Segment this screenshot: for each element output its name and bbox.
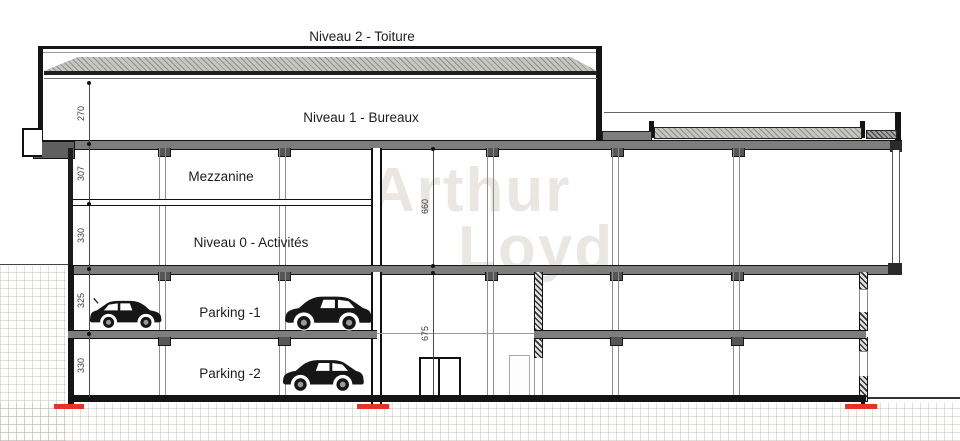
foundation-marker: [357, 404, 389, 409]
dimension-label-307: 307: [75, 150, 87, 196]
column: [612, 272, 619, 330]
roof-inner-line: [43, 52, 596, 53]
dimension-dot: [431, 395, 435, 399]
basement-window: [859, 351, 868, 378]
dimension-line-left: [89, 82, 90, 398]
wing-roof-insulation-band: [654, 127, 862, 139]
dimension-label-330: 330: [75, 212, 87, 258]
slab-end-block-right: [888, 263, 902, 275]
mezzanine-floor: [73, 199, 371, 206]
wing-roof-right-strip: [866, 130, 897, 139]
dimension-line-660: [433, 148, 434, 265]
parking1-floor-edge-line: [377, 333, 534, 334]
door-opening-jambs: [534, 358, 543, 397]
basement-window: [859, 289, 868, 314]
right-facade-niveau0: [892, 150, 900, 266]
car-icon: [282, 290, 374, 334]
roof-insulation-band: [44, 57, 597, 71]
label-niveau0-activites: Niveau 0 - Activités: [166, 235, 336, 250]
watermark-line1: Arthur: [370, 160, 571, 222]
beam-notch: [158, 337, 171, 346]
ground-line-left: [0, 264, 68, 265]
basement-bottom-slab: [68, 395, 866, 402]
dimension-label-325: 325: [75, 277, 87, 323]
terrain-hatch-bottom: [0, 403, 960, 441]
facade-ledge: [22, 128, 42, 157]
ground-line-right: [864, 397, 960, 399]
dimension-label-270: 270: [75, 90, 87, 136]
interior-wall-niveau0: [371, 148, 382, 266]
column: [487, 148, 494, 266]
beam-notch: [731, 337, 744, 346]
wing-roof-top-line: [604, 112, 899, 113]
building-section-drawing: Arthur Loyd: [0, 0, 960, 441]
dimension-dot: [87, 81, 91, 85]
column: [612, 148, 619, 266]
label-niveau2-toiture: Niveau 2 - Toiture: [272, 29, 452, 44]
dimension-dot: [431, 264, 435, 268]
dimension-dot: [87, 142, 91, 146]
office-parapet-top: [38, 46, 602, 49]
column: [733, 148, 740, 266]
roof-deck-line: [44, 71, 597, 75]
roof-underside-line: [44, 78, 597, 79]
niveau0-left-wall: [68, 148, 73, 268]
dimension-dot: [431, 147, 435, 151]
label-mezzanine: Mezzanine: [156, 169, 286, 184]
beam-notch: [610, 337, 623, 346]
car-icon: [280, 353, 366, 396]
label-parking-1: Parking -1: [170, 305, 290, 320]
foundation-marker: [54, 404, 84, 409]
dimension-label-675: 675: [419, 310, 431, 356]
dimension-label-660: 660: [419, 183, 431, 229]
insulated-wall-mid: [534, 337, 543, 358]
dimension-dot: [87, 397, 91, 401]
dimension-line-675: [433, 272, 434, 396]
door-divider: [438, 359, 440, 395]
basement-right-wall-segment: [859, 312, 868, 331]
label-niveau1-bureaux: Niveau 1 - Bureaux: [271, 110, 451, 125]
dimension-dot: [431, 271, 435, 275]
car-icon: [88, 293, 164, 334]
foundation-marker: [845, 404, 877, 409]
basement-right-wall-segment: [859, 337, 868, 351]
basement-right-wall-segment: [859, 272, 868, 289]
column: [159, 148, 166, 266]
beam-notch: [278, 337, 291, 346]
dimension-label-330b: 330: [75, 342, 87, 388]
dimension-dot: [87, 267, 91, 271]
column: [733, 272, 740, 330]
dimension-dot: [87, 202, 91, 206]
service-door: [509, 355, 530, 398]
parking1-floor-slab-right: [534, 330, 866, 339]
insulated-wall-upper: [534, 272, 543, 330]
label-parking-2: Parking -2: [170, 366, 290, 381]
